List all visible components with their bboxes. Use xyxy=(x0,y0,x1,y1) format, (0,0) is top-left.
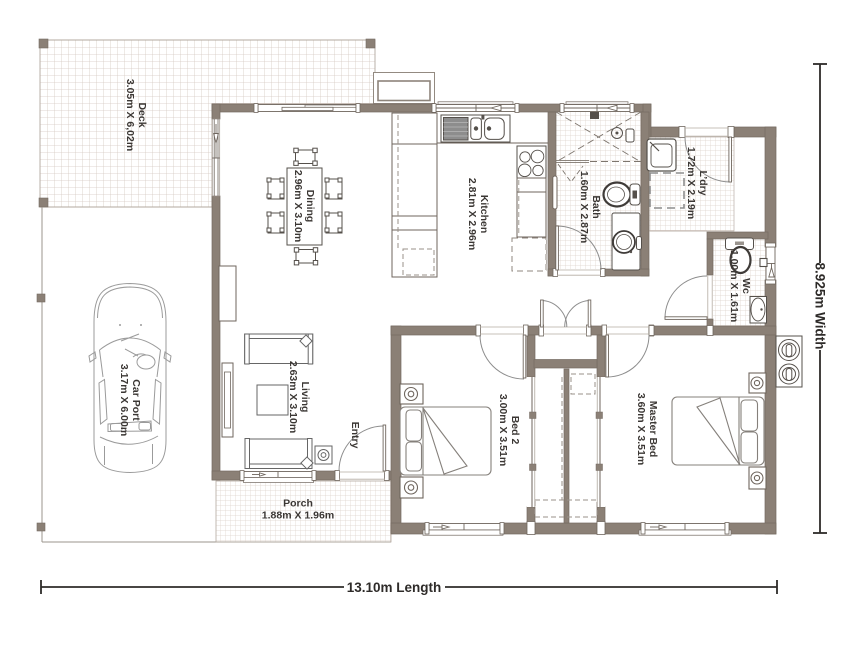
svg-text:Deck: Deck xyxy=(136,102,148,127)
svg-text:2.63m X 3.10m: 2.63m X 3.10m xyxy=(287,361,299,433)
svg-text:8.925m Width: 8.925m Width xyxy=(813,263,828,350)
svg-text:1.88m X 1.96m: 1.88m X 1.96m xyxy=(262,510,334,522)
svg-text:L’dry: L’dry xyxy=(697,170,709,195)
svg-text:Dining: Dining xyxy=(304,190,316,223)
svg-text:2.96m X 3.10m: 2.96m X 3.10m xyxy=(292,170,304,242)
svg-text:Entry: Entry xyxy=(349,422,361,449)
svg-text:1.60m X 2.87m: 1.60m X 2.87m xyxy=(578,171,590,243)
svg-text:3.17m X 6.00m: 3.17m X 6.00m xyxy=(118,364,130,436)
svg-text:2.81m X 2.96m: 2.81m X 2.96m xyxy=(466,178,478,250)
svg-text:Kitchen: Kitchen xyxy=(478,195,490,234)
svg-text:3.00m X 3.51m: 3.00m X 3.51m xyxy=(497,394,509,466)
svg-text:Wc: Wc xyxy=(740,278,752,294)
svg-text:3.05m X 6,02m: 3.05m X 6,02m xyxy=(124,79,136,151)
svg-text:1.72m X 2.19m: 1.72m X 2.19m xyxy=(685,147,697,219)
svg-text:Living: Living xyxy=(299,382,311,413)
svg-text:3.60m X 3.51m: 3.60m X 3.51m xyxy=(635,393,647,465)
svg-text:13.10m Length: 13.10m Length xyxy=(347,580,442,595)
svg-text:Master Bed: Master Bed xyxy=(647,401,659,458)
svg-text:Porch: Porch xyxy=(283,498,313,510)
svg-text:Car Port: Car Port xyxy=(130,379,142,421)
svg-text:Bath: Bath xyxy=(590,195,602,218)
svg-text:Bed 2: Bed 2 xyxy=(509,416,521,445)
svg-text:1.00m X 1.61m: 1.00m X 1.61m xyxy=(728,250,740,322)
